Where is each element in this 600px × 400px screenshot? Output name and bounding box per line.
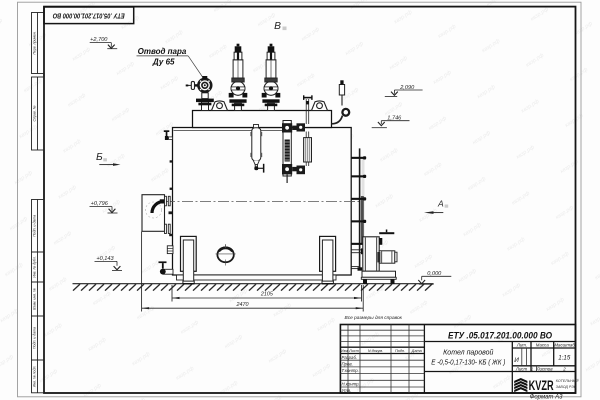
svg-text:+2,700: +2,700: [90, 37, 108, 43]
svg-text:Листов: Листов: [536, 366, 554, 371]
svg-text:2105: 2105: [260, 291, 274, 297]
svg-text:Н.контр.: Н.контр.: [342, 382, 360, 387]
svg-text:1,746: 1,746: [387, 115, 402, 121]
svg-text:Масса: Масса: [536, 342, 550, 347]
svg-text:N докум.: N докум.: [368, 349, 383, 353]
svg-text:2: 2: [562, 366, 566, 371]
svg-text:2,090: 2,090: [399, 85, 415, 91]
svg-text:+0,796: +0,796: [91, 201, 109, 207]
svg-text:ЕТУ .05.017.201.00.000 ВО: ЕТУ .05.017.201.00.000 ВО: [448, 329, 553, 340]
svg-text:Подп. и дата: Подп. и дата: [32, 327, 36, 349]
svg-text:Масштаб: Масштаб: [554, 342, 575, 347]
svg-text:А: А: [437, 198, 444, 208]
svg-text:+0,143: +0,143: [96, 256, 114, 262]
svg-text:Подп.: Подп.: [395, 349, 405, 353]
svg-text:Лист: Лист: [515, 366, 528, 371]
svg-text:Пров.: Пров.: [342, 362, 353, 367]
svg-text:Изм: Изм: [341, 349, 348, 353]
svg-text:0,000: 0,000: [427, 271, 442, 277]
svg-text:Е -0,5-0,17-130- КБ ( ЖК ): Е -0,5-0,17-130- КБ ( ЖК ): [431, 360, 505, 367]
svg-text:Котел паровой: Котел паровой: [443, 349, 493, 357]
svg-text:Т.контр.: Т.контр.: [342, 368, 359, 373]
svg-text:Подп. и дата: Подп. и дата: [32, 215, 36, 237]
svg-text:Взам. инв. №: Взам. инв. №: [32, 288, 36, 310]
svg-text:Утв.: Утв.: [342, 388, 352, 393]
svg-text:Лит.: Лит.: [516, 342, 527, 347]
svg-text:ЕТУ .05.017.201.00.000 ВО: ЕТУ .05.017.201.00.000 ВО: [52, 11, 124, 18]
svg-text:2470: 2470: [236, 302, 249, 308]
svg-text:В: В: [274, 21, 281, 32]
svg-text:Разраб.: Разраб.: [342, 355, 358, 360]
svg-text:Справ. №: Справ. №: [32, 105, 36, 121]
svg-text:Б: Б: [96, 152, 103, 163]
svg-text:Инв. № подл.: Инв. № подл.: [32, 366, 36, 388]
svg-text:Инв. № дубл.: Инв. № дубл.: [32, 256, 36, 278]
svg-text:Ду 65: Ду 65: [152, 58, 175, 67]
svg-text:Дата: Дата: [411, 349, 422, 353]
svg-text:Лист: Лист: [348, 349, 359, 353]
svg-text:И: И: [514, 357, 519, 364]
svg-text:1:15: 1:15: [558, 355, 571, 362]
svg-text:ЗАВОД РЭП: ЗАВОД РЭП: [556, 385, 577, 389]
svg-text:КОТЕЛЬНЫЙ: КОТЕЛЬНЫЙ: [556, 379, 579, 383]
svg-text:Формат А3: Формат А3: [530, 395, 563, 400]
svg-text:Отвод пара: Отвод пара: [138, 47, 187, 56]
svg-text:KVZR: KVZR: [529, 378, 554, 393]
svg-text:Все размеры для справок: Все размеры для справок: [345, 315, 403, 321]
svg-text:Перв. примен.: Перв. примен.: [32, 31, 36, 54]
